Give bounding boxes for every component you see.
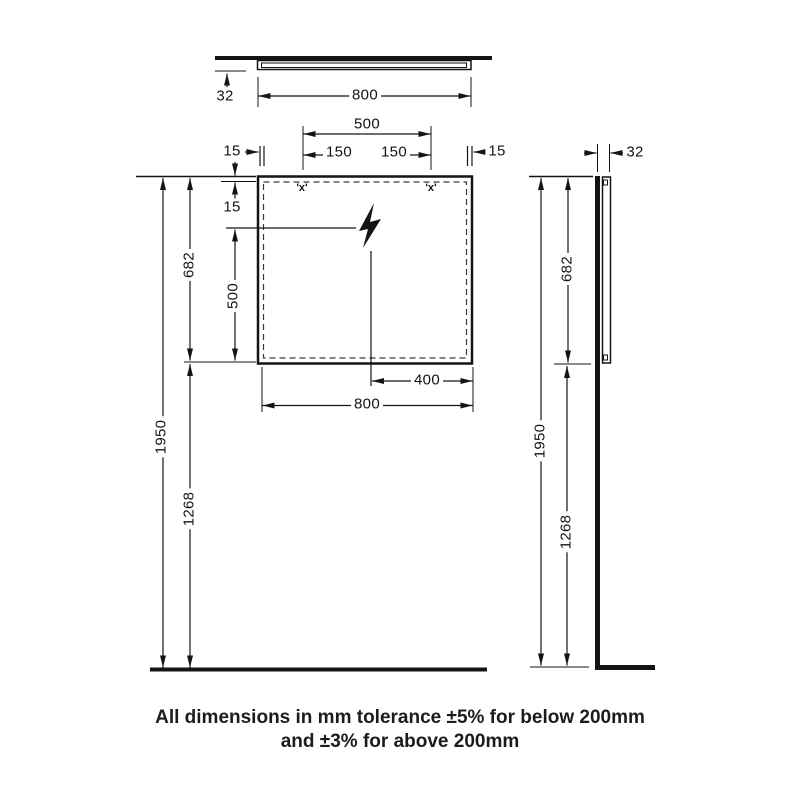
dim-label-total-height: 1950 [153, 417, 170, 458]
dim-label-inset-right: 15 [485, 143, 508, 160]
dim-label-top-depth: 32 [213, 88, 236, 105]
dim-label-inset-left: 15 [220, 143, 243, 160]
side-view [529, 144, 655, 670]
dim-label-floor-clearance: 1268 [181, 489, 198, 530]
tolerance-footnote-line2: and ±3% for above 200mm [0, 730, 800, 754]
front-view [136, 126, 487, 670]
side-view-mirror-profile [603, 177, 611, 363]
dim-label-drop-500: 500 [225, 280, 242, 312]
dim-label-cable-offset: 400 [411, 372, 443, 389]
dim-label-front-width: 800 [351, 396, 383, 413]
dim-label-side-depth: 32 [623, 144, 646, 161]
mount-point-marker-left: 'x' [296, 182, 307, 194]
dim-label-mount-left: 150 [323, 144, 355, 161]
mirror-technical-drawing: 32 800 500 150 150 15 15 15 500 682 1950… [0, 0, 800, 800]
top-view-mirror-profile [258, 61, 472, 70]
mount-point-marker-right: 'x' [425, 182, 436, 194]
dim-label-side-floor-clearance: 1268 [558, 512, 575, 553]
front-view-mirror [258, 177, 472, 364]
dim-label-top-width: 800 [349, 87, 381, 104]
dim-label-inset-top: 15 [220, 199, 243, 216]
tolerance-footnote: All dimensions in mm tolerance ±5% for b… [0, 706, 800, 754]
tolerance-footnote-line1: All dimensions in mm tolerance ±5% for b… [0, 706, 800, 730]
dim-label-mount-span: 500 [351, 116, 383, 133]
dim-label-side-mirror-height: 682 [559, 253, 576, 285]
drawing-linework [0, 0, 800, 800]
dim-label-mirror-height: 682 [181, 249, 198, 281]
dim-label-side-total-height: 1950 [532, 421, 549, 462]
dim-label-mount-right: 150 [378, 144, 410, 161]
